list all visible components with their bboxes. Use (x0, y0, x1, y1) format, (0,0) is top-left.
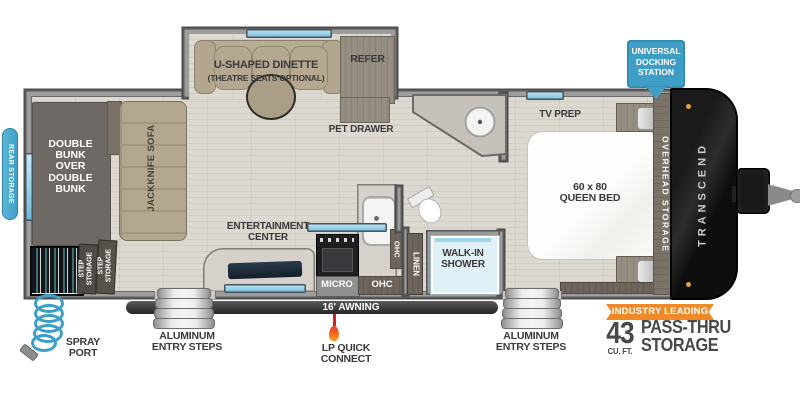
range-grate (322, 248, 353, 272)
bath-wall-segment (396, 186, 402, 232)
entry-steps-right-label: ALUMINUM ENTRY STEPS (466, 331, 596, 353)
corner-vanity-sink (412, 94, 508, 158)
cap-marker-light (686, 104, 691, 109)
lp-flame-icon (329, 326, 339, 341)
awning-label: 16' AWNING (296, 303, 406, 314)
tv-prep-window-icon (526, 91, 564, 100)
ohc-vertical-label: OHC (390, 229, 403, 269)
pet-drawer-label: PET DRAWER (322, 125, 400, 136)
dinette-window-icon (246, 29, 332, 38)
bunk-label: DOUBLE BUNK OVER DOUBLE BUNK (33, 139, 108, 195)
entry-step (153, 318, 215, 329)
range-knobs (320, 238, 354, 242)
cap-marker-light (686, 282, 691, 287)
dinette-sublabel: (THEATRE SEATS OPTIONAL) (186, 74, 346, 83)
refer-label: REFER (340, 54, 395, 65)
floorplan-canvas: U-SHAPED DINETTE (THEATRE SEATS OPTIONAL… (0, 0, 800, 400)
storage-unit: CU. FT. (602, 347, 638, 356)
step-storage-label: STEP STORAGE (78, 244, 93, 294)
pet-drawer-cabinet (340, 97, 390, 123)
refrigerator (340, 36, 395, 104)
storage-text: PASS-THRU STORAGE (641, 318, 747, 353)
docking-station-label: UNIVERSAL DOCKING STATION (627, 46, 685, 78)
bed-label: 60 x 80 QUEEN BED (536, 182, 644, 204)
kitchen-window-icon (307, 223, 387, 232)
ohc-label: OHC (358, 280, 406, 290)
spray-port-label: SPRAY PORT (48, 337, 118, 359)
docking-station-pointer (646, 87, 666, 99)
micro-label: MICRO (316, 280, 358, 290)
propane-cover (736, 168, 770, 214)
kitchen-faucet-icon (374, 216, 379, 221)
bedroom-cabinet (560, 282, 654, 294)
dinette-label: U-SHAPED DINETTE (191, 60, 341, 72)
storage-number: 43 (603, 317, 637, 348)
linen-label: LINEN (407, 233, 423, 295)
shower-glass-icon (435, 238, 491, 242)
tv-prep-label: TV PREP (526, 110, 594, 121)
entertainment-label: ENTERTAINMENT CENTER (220, 222, 316, 243)
transcend-brand-label: TRANSCEND (697, 105, 712, 285)
sofa-label: JACKKNIFE SOFA (147, 103, 157, 233)
shower-label: WALK-IN SHOWER (428, 249, 498, 270)
tv-icon (228, 261, 303, 280)
entry-step (501, 318, 563, 329)
lp-connect-line (333, 314, 336, 326)
hitch-coupler (790, 189, 800, 203)
entertainment-window-icon (224, 284, 306, 293)
step-storage-label: STEP STORAGE (97, 241, 112, 291)
bunk-ladder (30, 246, 84, 296)
entry-steps-left-label: ALUMINUM ENTRY STEPS (122, 331, 252, 353)
rear-storage-label: REAR STORAGE (2, 128, 18, 220)
rear-window-icon (25, 153, 33, 221)
lp-quick-connect-label: LP QUICK CONNECT (306, 343, 386, 365)
